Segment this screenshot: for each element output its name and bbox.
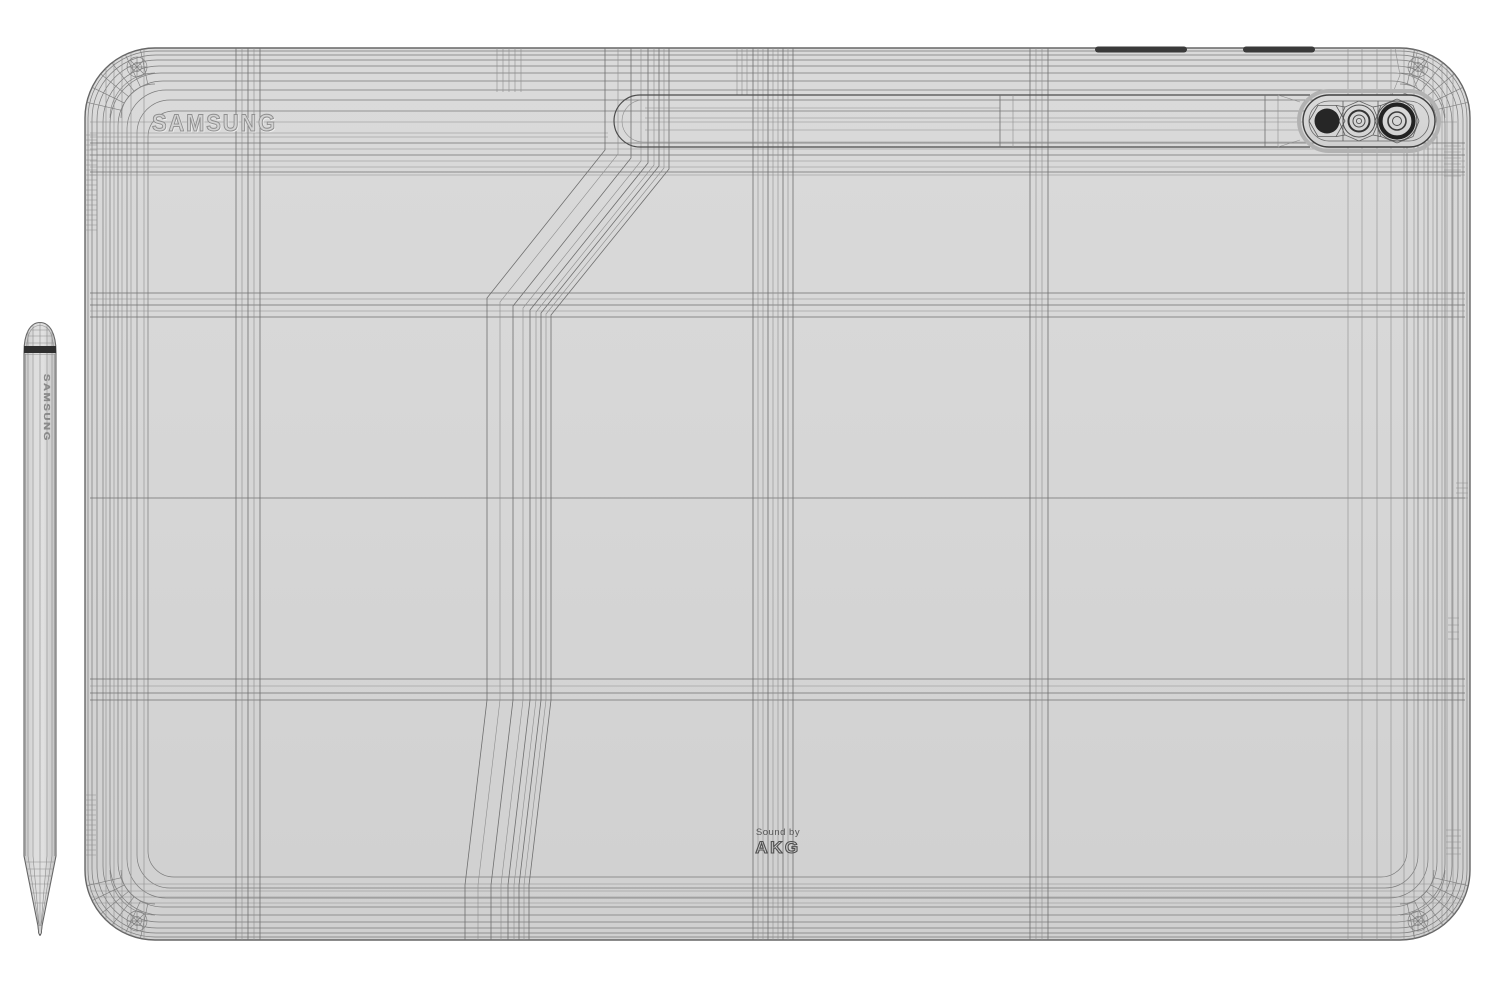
s-pen-samsung-label: SAMSUNG bbox=[42, 374, 52, 442]
camera-flash bbox=[1315, 109, 1340, 134]
wireframe-product-render: SAMSUNG SAMSUNG Sound by AKG bbox=[0, 0, 1500, 1000]
power-button bbox=[1095, 47, 1187, 53]
tablet-body-outline bbox=[85, 48, 1470, 940]
sound-by-label: Sound by bbox=[756, 827, 800, 838]
render-canvas: SAMSUNG SAMSUNG Sound by AKG bbox=[0, 0, 1500, 1000]
samsung-logo: SAMSUNG bbox=[152, 110, 277, 137]
s-pen-tip bbox=[38, 926, 42, 935]
akg-logo: AKG bbox=[755, 838, 800, 857]
s-pen: SAMSUNG bbox=[24, 322, 56, 936]
camera-module bbox=[1299, 91, 1439, 151]
volume-button bbox=[1243, 47, 1315, 53]
tablet-back: SAMSUNG SAMSUNG Sound by AKG bbox=[84, 47, 1470, 941]
s-pen-cap-band bbox=[24, 346, 56, 353]
